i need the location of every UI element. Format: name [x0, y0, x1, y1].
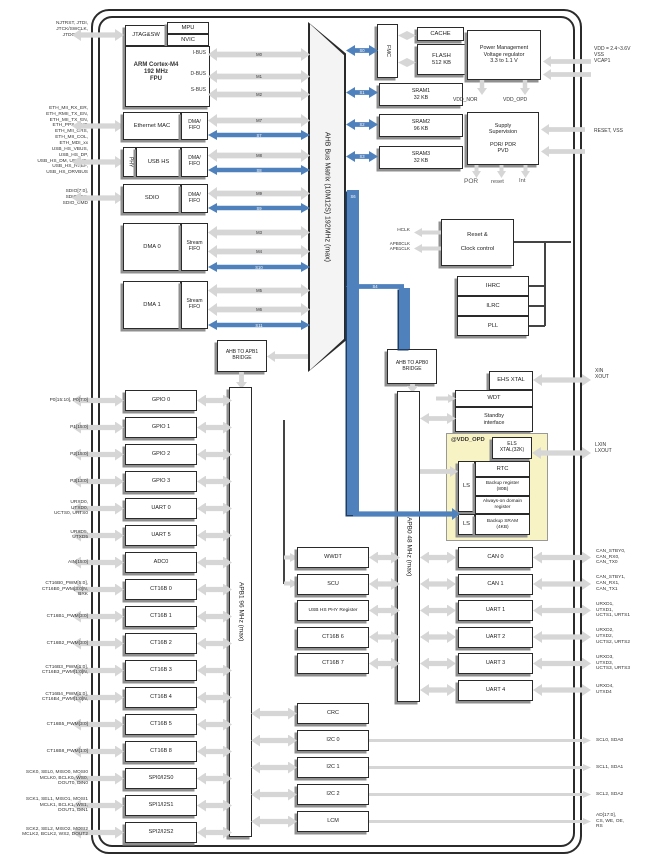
pin-label-uart-0: URXD0, UTXD0, UCTS0, URTS0	[4, 500, 88, 517]
block-uart-2: UART 2	[458, 627, 533, 648]
pin-label-lcm: AD[17:0], CS, WE, OE, RS	[596, 813, 658, 830]
block-usb-hs: USB HS	[136, 147, 181, 177]
block-ct16b-3: CT16B 3	[125, 660, 197, 681]
block-i2c-0: I2C 0	[297, 730, 369, 751]
block-dma-0-fifo: Stream FIFO	[181, 223, 208, 271]
block-usb-hs-phy-register: USB HS PHY Register	[297, 600, 369, 621]
ahb-trunk-vertical	[347, 190, 359, 515]
block-reset-clock-control: Reset & Clock control	[441, 219, 514, 266]
pin-label-gpio-1: P1[15:0]	[4, 425, 88, 431]
pin-label-gpio-0: P0[15:10], P0[7:0]	[4, 398, 88, 404]
block-spi1-i2s1: SPI1/I2S1	[125, 795, 197, 816]
pin-label-i2c-2: SCL2, SDA2	[596, 792, 658, 798]
block-uart-1: UART 1	[458, 600, 533, 621]
pin-label-spi0-i2s0: SCK0, SEL0, MISO0, MOSI0 MCLK0, BCLK0, W…	[4, 770, 88, 787]
apb0-bus-bar: APB0 48 MHz (max)	[397, 391, 420, 702]
block-ct16b-7: CT16B 7	[297, 653, 369, 674]
ilrc-wire	[529, 305, 545, 307]
block-uart-0: UART 0	[125, 498, 197, 519]
block-nvic: NVIC	[167, 34, 209, 46]
block-ls-lower: LS	[458, 514, 475, 535]
block-ct16b-2: CT16B 2	[125, 633, 197, 654]
ihrc-wire	[529, 285, 545, 287]
block-can-0: CAN 0	[458, 547, 533, 568]
reset-pins-label: RESET, VSS	[594, 128, 654, 134]
block-always-on-register: Always-on domain register	[475, 496, 530, 514]
lxin-lxout-label: LXIN LXOUT	[595, 442, 635, 454]
pin-label-uart-3: URXD3, UTXD3, UCTS3, URTS3	[596, 655, 658, 672]
hclk-label: HCLK	[384, 228, 410, 234]
ahb-to-apb0-vertical	[399, 288, 410, 349]
apb1-bus-bar: APB1 96 MHz (max)	[229, 387, 252, 837]
pin-label-uart-2: URXD2, UTXD2, UCTS2, URTS2	[596, 628, 658, 645]
block-wdt: WDT	[455, 390, 533, 407]
block-ct16b-4: CT16B 4	[125, 687, 197, 708]
block-can-1: CAN 1	[458, 574, 533, 595]
block-dma-0: DMA 0	[123, 223, 181, 271]
pin-label-ct16b-3: CT16B3_PWM[1:0], CT16B3_PWM[1:0]N,	[4, 665, 88, 677]
block-supply-supervision: Supply Supervision POR/ PDR PVD	[467, 112, 539, 165]
pin-label-gpio-3: P3[13:0]	[4, 479, 88, 485]
block-gpio-1: GPIO 1	[125, 417, 197, 438]
block-pll: PLL	[457, 316, 529, 336]
block-wwdt: WWDT	[297, 547, 369, 568]
rcc-right-wire	[514, 241, 571, 243]
block-ihrc: IHRC	[457, 276, 529, 296]
block-ct16b-0: CT16B 0	[125, 579, 197, 600]
pin-label-can-1: CAN_STBY1, CAN_RX1, CAN_TX1	[596, 575, 658, 592]
block-ct16b-6: CT16B 6	[297, 627, 369, 648]
block-lcm: LCM	[297, 811, 369, 832]
block-dma-1: DMA 1	[123, 281, 181, 329]
pin-label-i2c-0: SCL0, SDA0	[596, 738, 658, 744]
pin-label-ct16b-8: CT16B8_PWM[1:0]	[4, 749, 88, 755]
vdd-nor-label: VDD_NOR	[453, 97, 493, 103]
block-ahb-apb0-bridge: AHB TO APB0 BRIDGE	[387, 349, 437, 384]
block-mpu: MPU	[167, 22, 209, 34]
block-ethernet-mac: Ethernet MAC	[123, 112, 181, 140]
block-ethernet-mac-fifo: DMA/ FIFO	[181, 112, 208, 140]
pin-label-ct16b-2: CT16B2_PWM[3:0]	[4, 641, 88, 647]
block-sram1: SRAM1 32 KB	[379, 83, 463, 106]
sbus-label: S-BUS	[176, 87, 206, 93]
ibus-label: I-BUS	[176, 50, 206, 56]
pll-wire	[529, 325, 545, 327]
block-usb-hs-fifo: DMA/ FIFO	[181, 147, 208, 177]
block-gpio-0: GPIO 0	[125, 390, 197, 411]
pin-label-uart-1: URXD1, UTXD1, UCTS1, URTS1	[596, 602, 658, 619]
block-cache: CACHE	[417, 27, 464, 41]
pin-label-spi1-i2s1: SCK1, SEL1, MISO1, MOSI1 MCLK1, BCLK1, W…	[4, 797, 88, 814]
block-ls-upper: LS	[458, 461, 475, 512]
block-backup-register: Backup register (80B)	[475, 477, 530, 496]
block-rtc: RTC	[475, 461, 530, 477]
pin-label-gpio-2: P2[15:0]	[4, 452, 88, 458]
int-label: Int	[519, 178, 535, 185]
block-sdio: SDIO	[123, 184, 181, 213]
block-crc: CRC	[297, 703, 369, 724]
block-ct16b-1: CT16B 1	[125, 606, 197, 627]
ahb-bus-matrix-label: AHB Bus Matrix (10M12S) 192MHz (max)	[324, 132, 331, 262]
dbus-label: D-BUS	[176, 71, 206, 77]
block-i2c-2: I2C 2	[297, 784, 369, 805]
block-els-xtal: ELS XTAL(32K)	[492, 437, 532, 459]
block-ahb-apb1-bridge: AHB TO APB1 BRIDGE	[217, 340, 267, 372]
block-power-management: Power Management Voltage regulator 3.3 t…	[467, 30, 541, 80]
pin-label-ct16b-4: CT16B4_PWM[1:0], CT16B4_PWM[1:0]N,	[4, 692, 88, 704]
pin-label-ct16b-1: CT16B1_PWM[3:0]	[4, 614, 88, 620]
block-phy: PHY	[123, 147, 136, 177]
block-backup-sram: Backup SRAM (4KB)	[475, 514, 530, 535]
block-spi0-i2s0: SPI0/I2S0	[125, 768, 197, 789]
xin-xout-label: XIN XOUT	[595, 368, 635, 380]
block-sram3: SRAM3 32 KB	[379, 146, 463, 169]
block-i2c-1: I2C 1	[297, 757, 369, 778]
block-sdio-fifo: DMA/ FIFO	[181, 184, 208, 213]
ahb-trunk-s6-label: S6	[341, 194, 365, 199]
block-scu: SCU	[297, 574, 369, 595]
vdd-opd-label: VDD_OPD	[503, 97, 543, 103]
block-spi2-i2s2: SPI2/I2S2	[125, 822, 197, 843]
reset-label: reset	[491, 179, 513, 186]
block-flash: FLASH 512 KB	[417, 44, 466, 75]
block-jtag: JTAG&SW	[125, 25, 167, 46]
block-gpio-2: GPIO 2	[125, 444, 197, 465]
block-ehs-xtal: EHS XTAL	[489, 371, 533, 390]
block-uart-4: UART 4	[458, 680, 533, 701]
block-uart-5: UART 5	[125, 525, 197, 546]
block-ct16b-8: CT16B 8	[125, 741, 197, 762]
apbclk-label: APB0CLK APB1CLK	[376, 241, 410, 252]
block-dma-1-fifo: Stream FIFO	[181, 281, 208, 329]
pin-label-spi2-i2s2: SCK2, SEL2, MISO2, MOSI2 MCLK2, BCLK2, W…	[4, 827, 88, 839]
vdd-pins-label: VDD = 2.4~3.6V VSS VCAP1	[594, 46, 656, 64]
pin-label-i2c-1: SCL1, SDA1	[596, 765, 658, 771]
block-uart-3: UART 3	[458, 653, 533, 674]
block-standby-interface: Standby interface	[455, 407, 533, 432]
pin-label-can-0: CAN_STBY0, CAN_RX0, CAN_TX0	[596, 549, 658, 566]
block-adc0: ADC0	[125, 552, 197, 573]
block-sram2: SRAM2 96 KB	[379, 114, 463, 137]
pin-label-ct16b-0: CT16B0_PWM[5:0], CT16B0_PWM[3:0]N, BRK	[4, 581, 88, 598]
block-ct16b-5: CT16B 5	[125, 714, 197, 735]
mcu-block-diagram: JTAG&SW MPU NVIC ARM Cortex-M4 192 MHz F…	[0, 0, 661, 862]
osc-right-wire	[544, 241, 546, 326]
pin-label-adc0: AIN[15:0]	[4, 560, 88, 566]
pin-label-uart-5: URXD5, UTXD5	[4, 530, 88, 542]
block-ilrc: ILRC	[457, 296, 529, 316]
pin-label-ct16b-5: CT16B5_PWM[3:0]	[4, 722, 88, 728]
block-fmc: FMC	[377, 24, 398, 78]
block-gpio-3: GPIO 3	[125, 471, 197, 492]
pin-label-uart-4: URXD4, UTXD4	[596, 684, 658, 696]
por-label: POR	[464, 178, 486, 186]
